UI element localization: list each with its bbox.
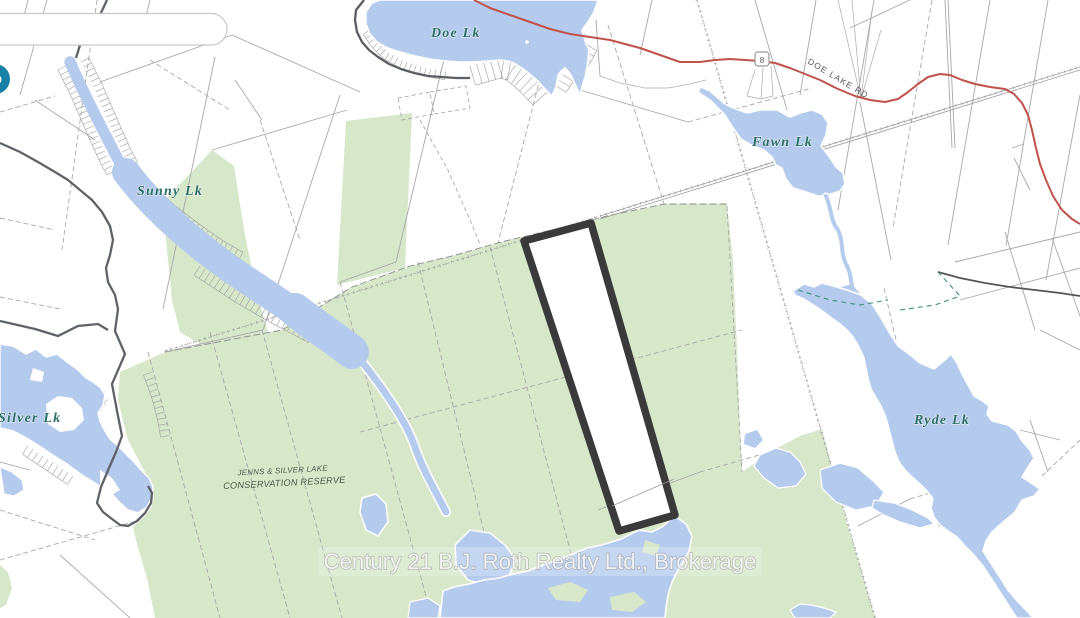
svg-text:8: 8	[760, 56, 765, 65]
svg-text:Sunny Lk: Sunny Lk	[137, 184, 203, 199]
svg-text:Doe Lk: Doe Lk	[430, 26, 481, 41]
svg-text:Ryde Lk: Ryde Lk	[913, 413, 970, 428]
svg-text:Century 21 B.J. Roth Realty Lt: Century 21 B.J. Roth Realty Ltd., Broker…	[324, 549, 757, 574]
svg-text:Silver Lk: Silver Lk	[0, 411, 61, 426]
svg-text:Fawn Lk: Fawn Lk	[751, 135, 813, 150]
